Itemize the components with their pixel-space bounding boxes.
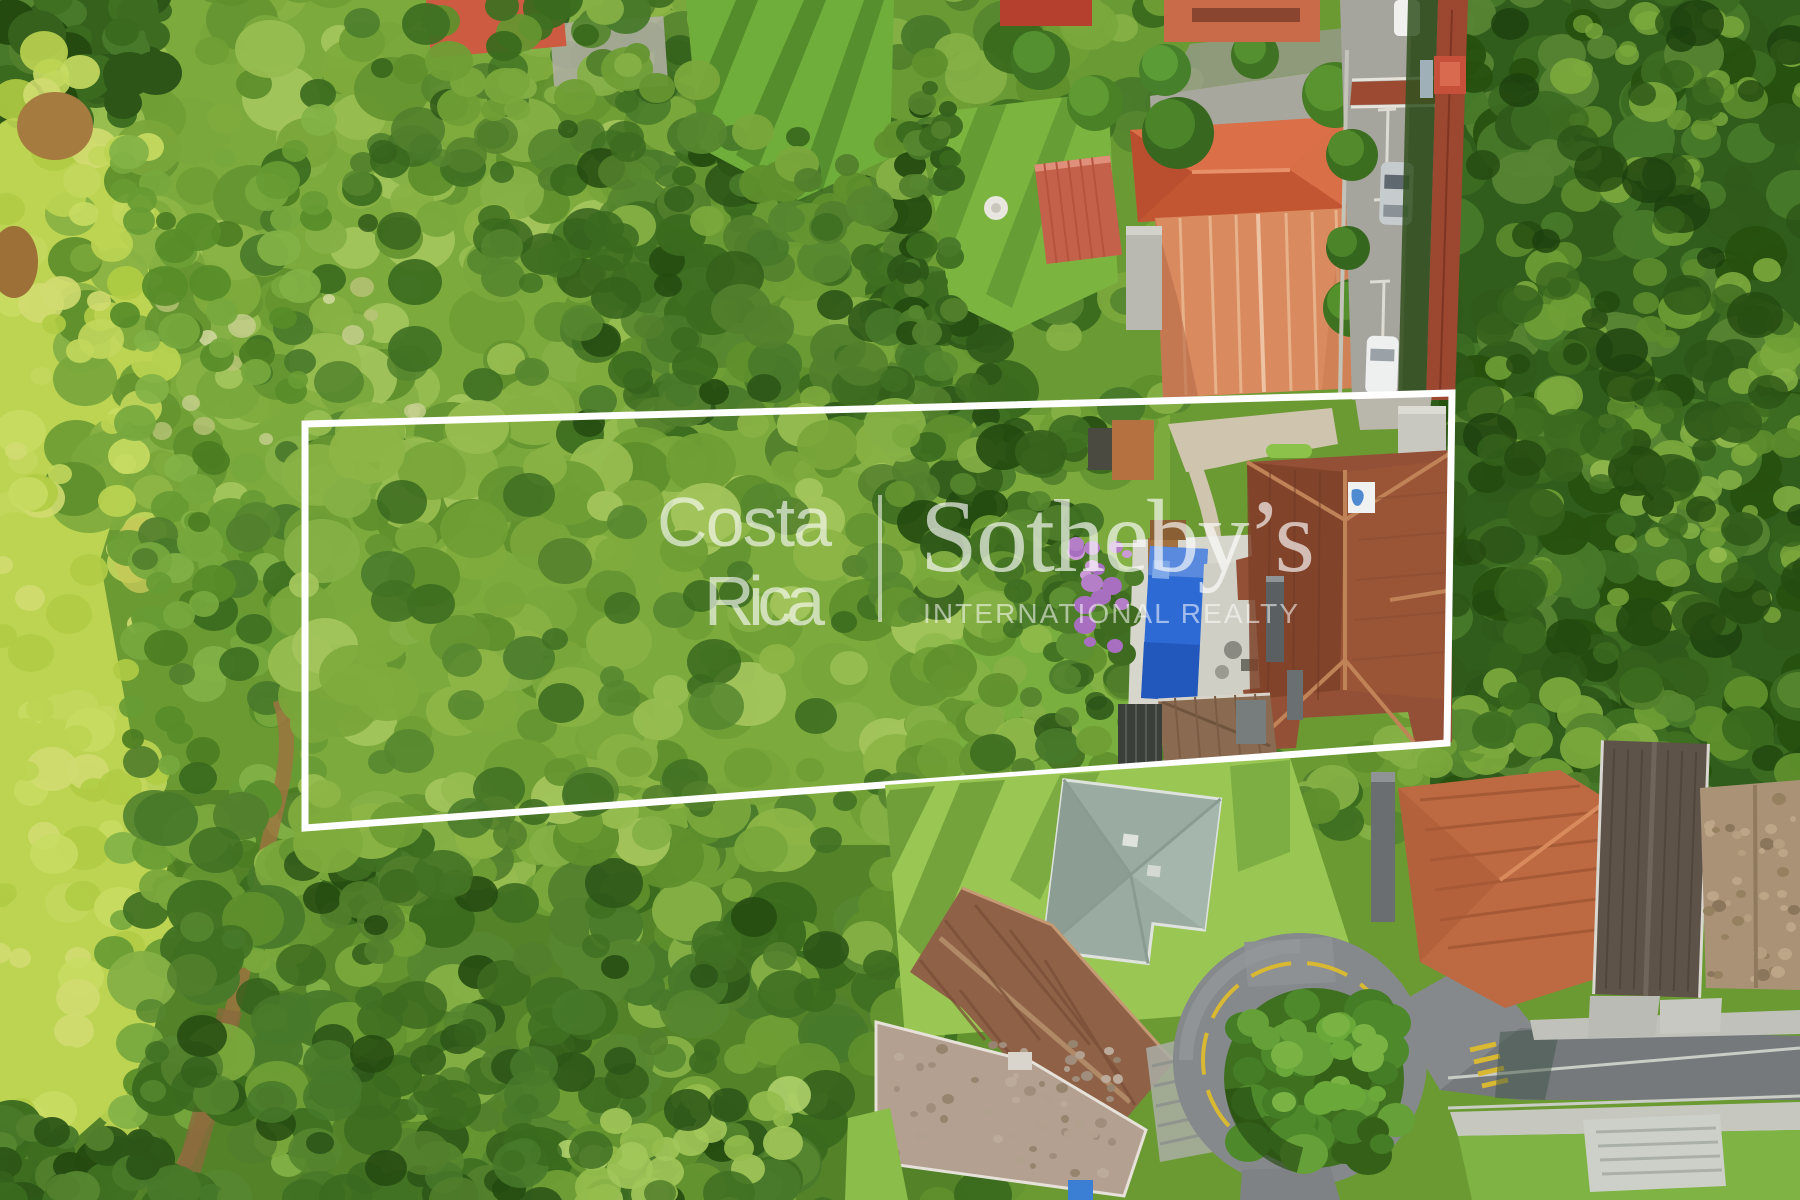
svg-text:Sotheby’s: Sotheby’s	[920, 479, 1315, 594]
svg-text:Costa: Costa	[657, 483, 833, 561]
svg-text:Rica: Rica	[704, 562, 826, 640]
svg-text:INTERNATIONAL REALTY: INTERNATIONAL REALTY	[923, 598, 1305, 629]
